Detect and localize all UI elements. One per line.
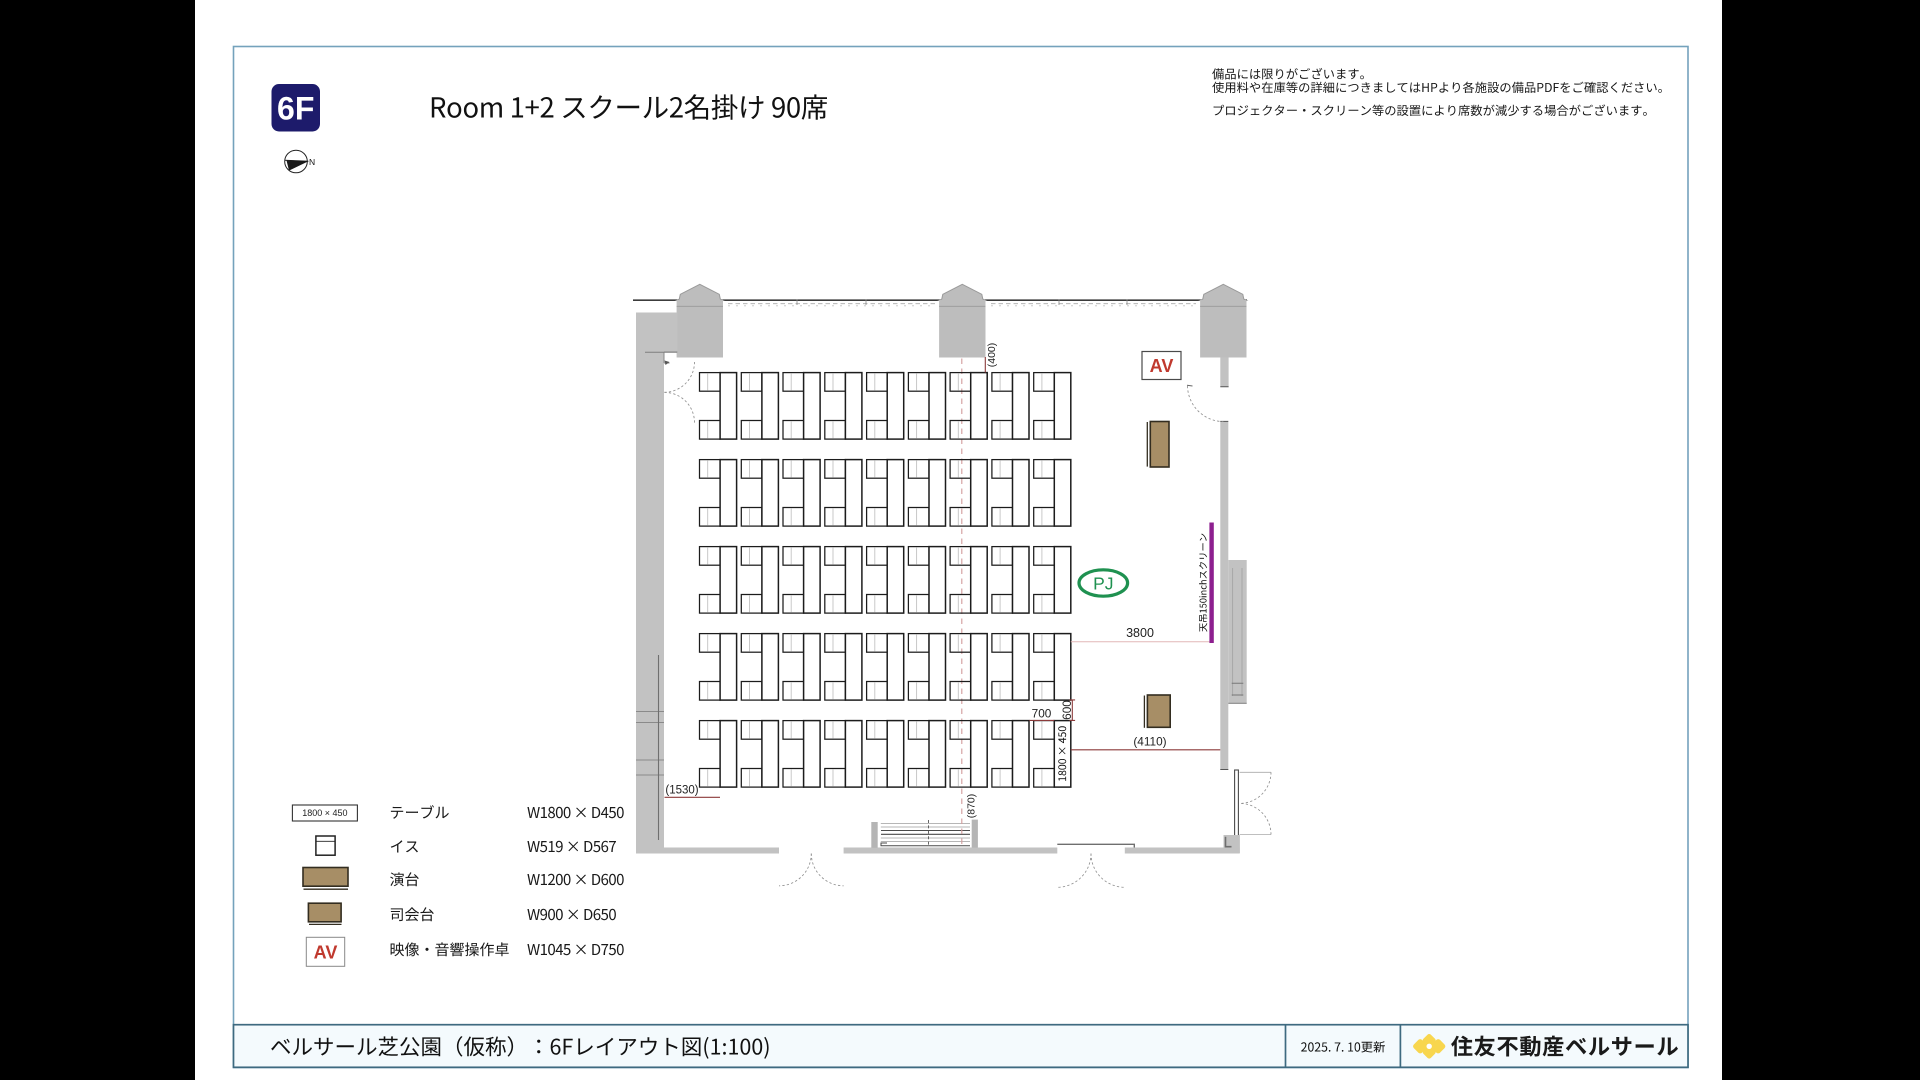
svg-text:(870): (870) <box>966 794 978 819</box>
svg-text:700: 700 <box>1032 707 1052 721</box>
svg-text:600: 600 <box>1060 700 1074 720</box>
svg-text:(1530): (1530) <box>665 785 698 797</box>
svg-text:PJ: PJ <box>1093 574 1113 594</box>
svg-text:N: N <box>309 157 315 167</box>
svg-text:6F: 6F <box>277 91 314 127</box>
svg-text:AV: AV <box>314 943 338 963</box>
svg-text:AV: AV <box>1150 356 1174 376</box>
svg-text:(4110): (4110) <box>1133 735 1166 749</box>
svg-text:1800 × 450: 1800 × 450 <box>302 808 347 818</box>
svg-text:3800: 3800 <box>1126 626 1154 640</box>
svg-text:(400): (400) <box>986 343 998 368</box>
